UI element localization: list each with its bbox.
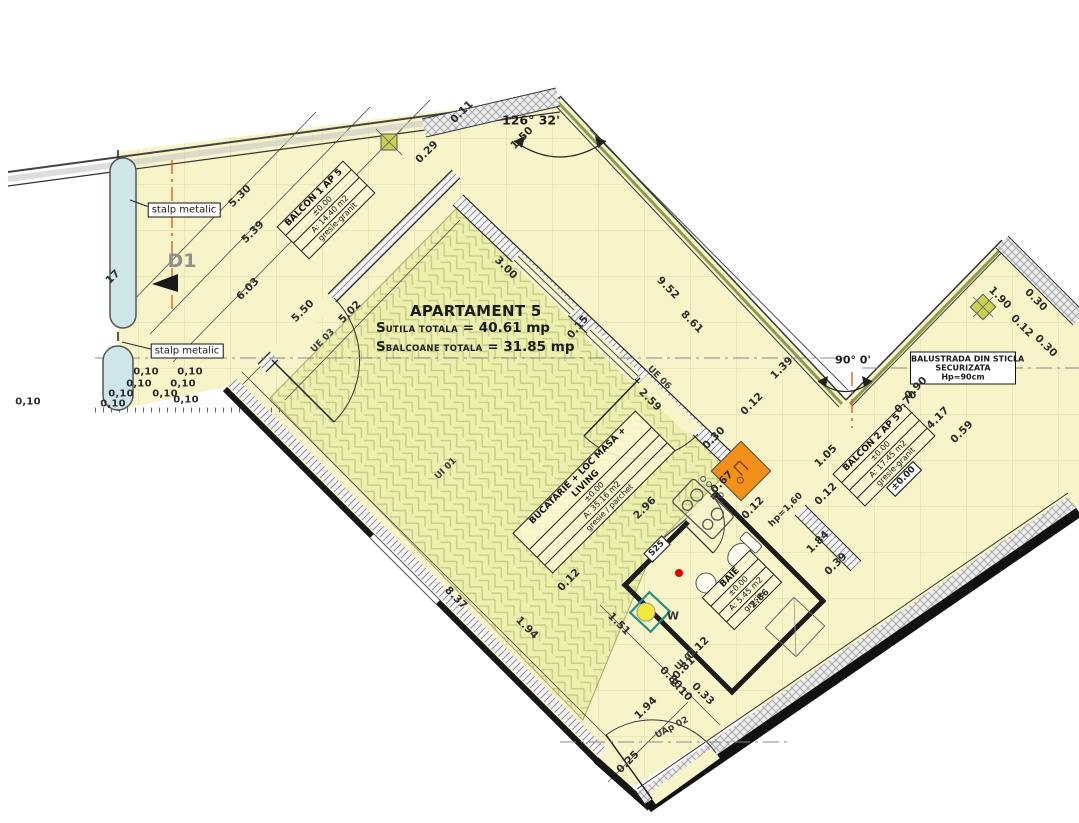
total-balcony-area: SBALCOANE TOTALA = 31.85 mp: [376, 339, 575, 358]
metal-column-label: stalp metalic: [151, 344, 224, 359]
dimension-label: 0,10: [15, 397, 40, 408]
detail-mark: D1: [168, 250, 197, 272]
page-title: APARTAMENT 5: [410, 302, 575, 320]
angle-label-right: 90° 0': [835, 354, 871, 367]
metal-column-label: stalp metalic: [148, 203, 221, 218]
red-marker-dot: [675, 569, 683, 577]
dimension-label: 0,10: [100, 399, 125, 410]
washer-label: W: [667, 610, 679, 623]
dimension-label: 0,10: [177, 367, 202, 378]
total-useful-area: SUTILA TOTALA = 40.61 mp: [376, 320, 575, 339]
dimension-label: 0,10: [173, 395, 198, 406]
floor-plan-page: APARTAMENT 5 SUTILA TOTALA = 40.61 mp SB…: [0, 0, 1079, 823]
angle-label-top: 126° 32': [502, 113, 560, 128]
apartment-title-block: APARTAMENT 5 SUTILA TOTALA = 40.61 mp SB…: [376, 302, 575, 358]
boiler-icon: [637, 603, 655, 621]
dimension-label: 0,10: [133, 367, 158, 378]
